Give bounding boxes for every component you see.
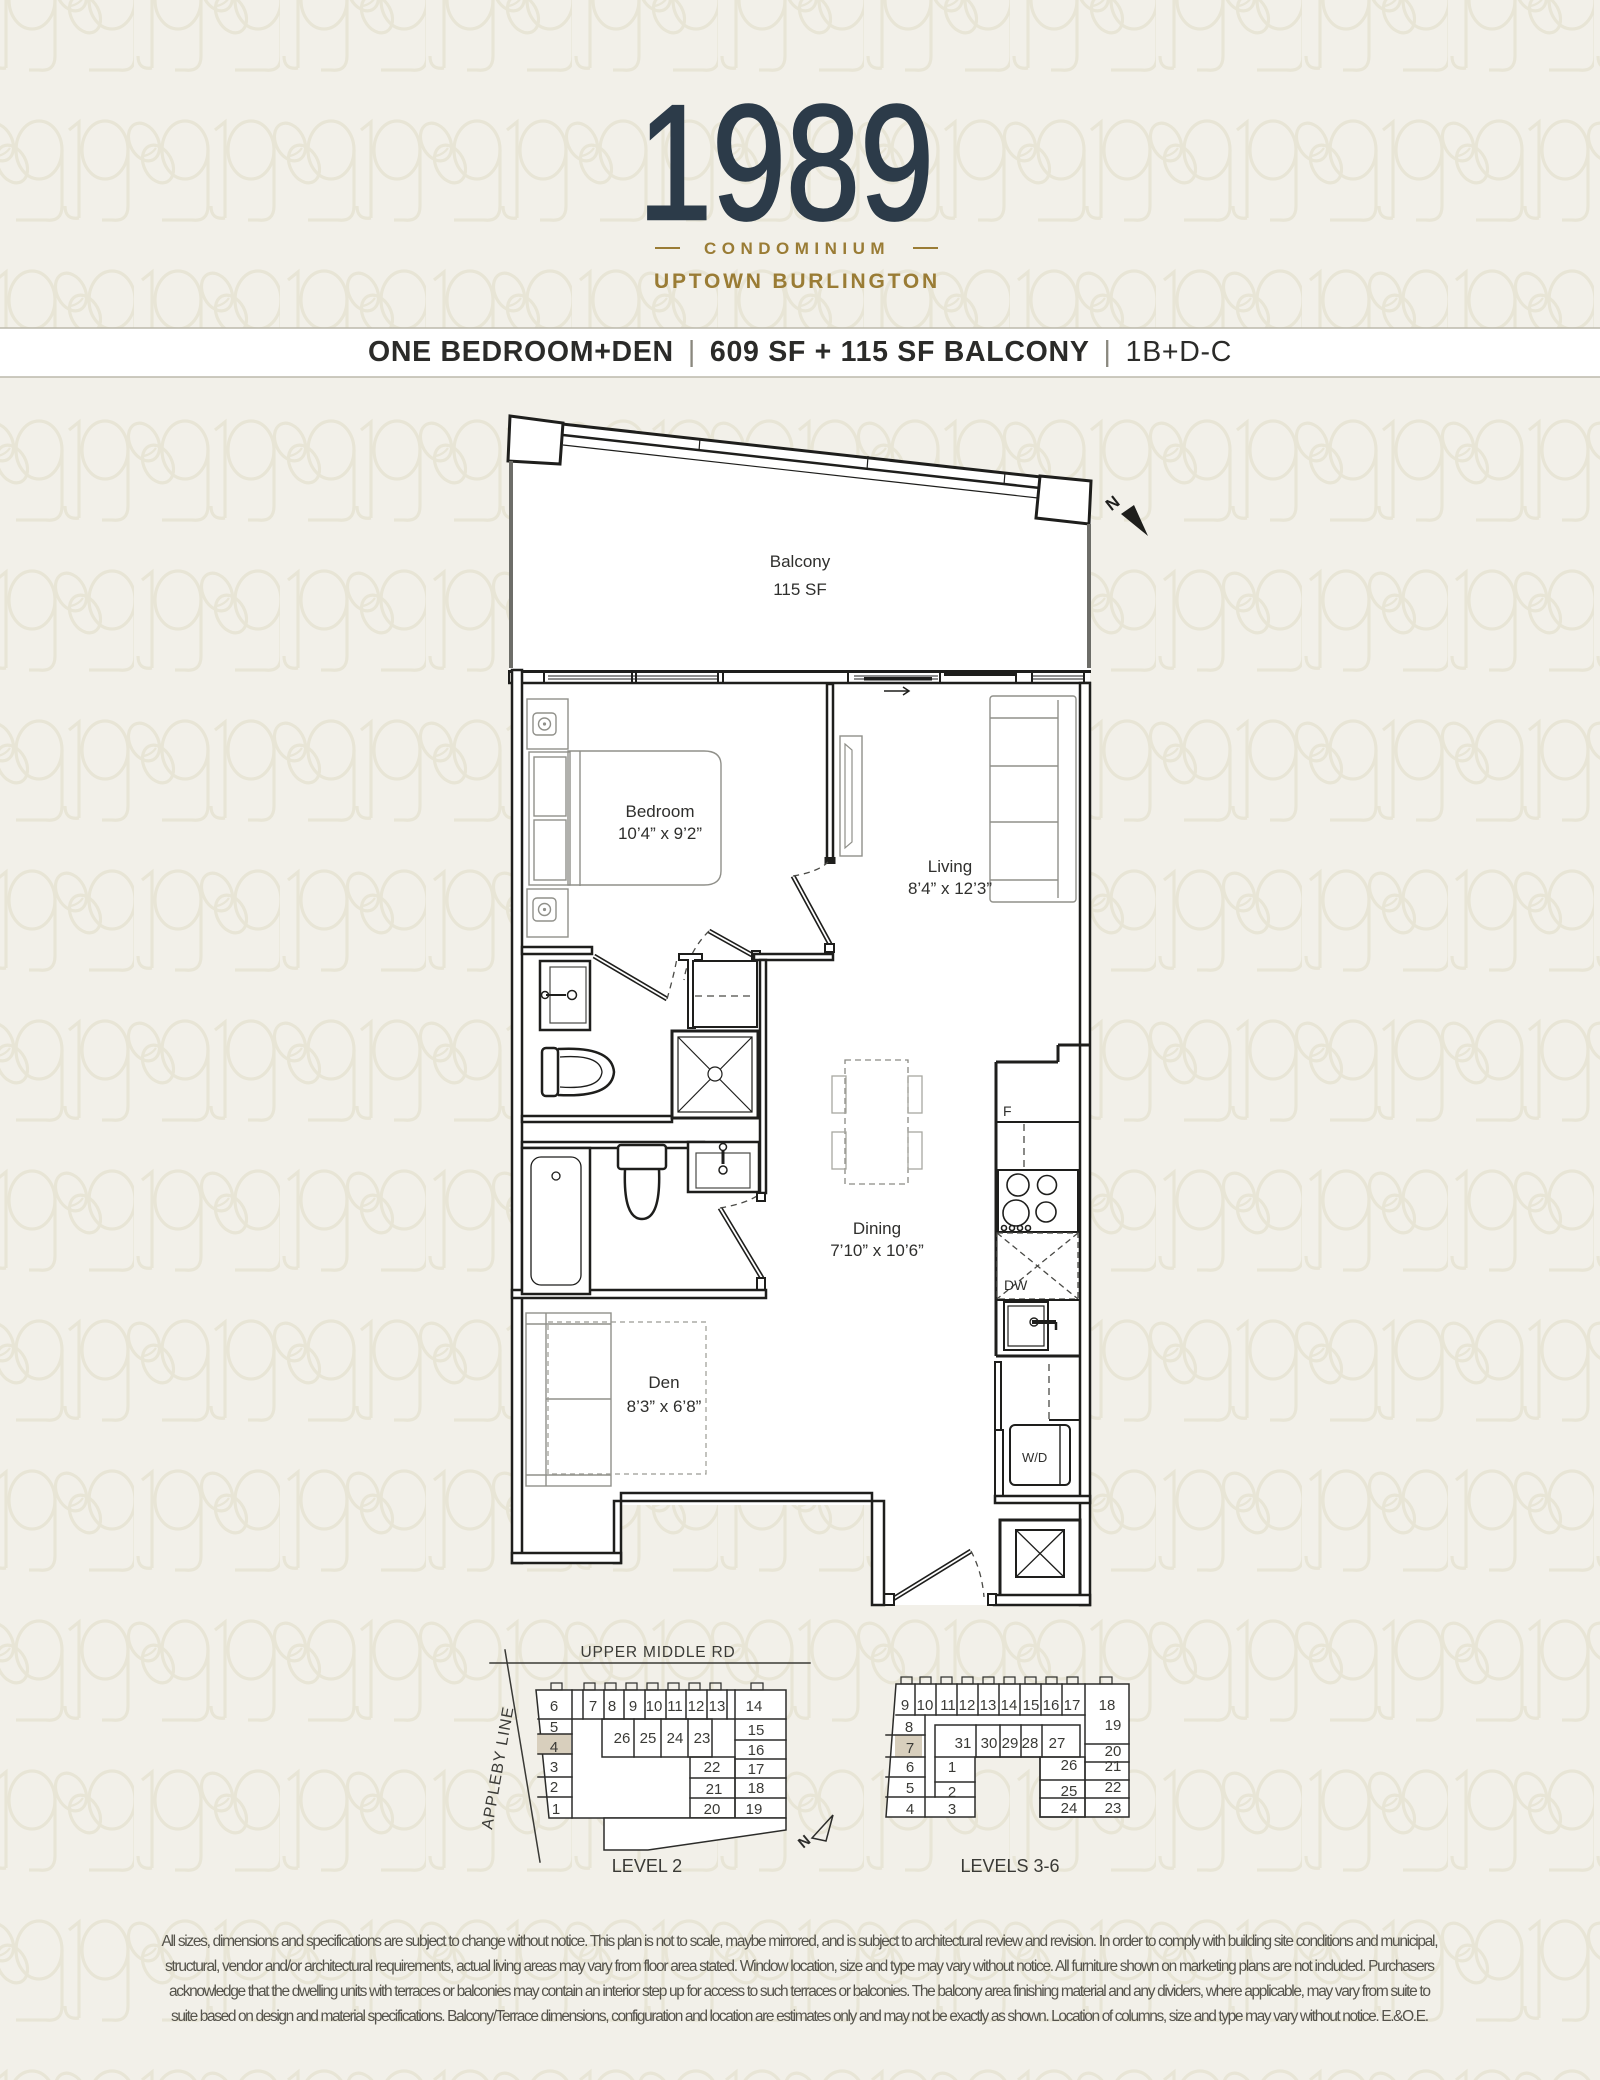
svg-text:1: 1 [948, 1759, 956, 1776]
svg-text:Balcony: Balcony [770, 552, 831, 571]
svg-text:2: 2 [948, 1784, 956, 1801]
svg-text:10’4” x 9’2”: 10’4” x 9’2” [618, 824, 702, 843]
svg-text:10: 10 [917, 1697, 934, 1714]
svg-text:8’3” x 6’8”: 8’3” x 6’8” [627, 1397, 702, 1416]
svg-text:31: 31 [955, 1735, 972, 1752]
svg-text:11: 11 [940, 1697, 956, 1714]
svg-text:23: 23 [694, 1730, 711, 1747]
svg-text:3: 3 [948, 1801, 956, 1818]
svg-text:UPTOWN BURLINGTON: UPTOWN BURLINGTON [654, 270, 940, 293]
svg-text:W/D: W/D [1022, 1450, 1047, 1465]
svg-text:9: 9 [901, 1697, 909, 1714]
svg-text:5: 5 [550, 1719, 558, 1736]
svg-text:1989: 1989 [638, 71, 934, 254]
svg-text:5: 5 [906, 1780, 914, 1797]
svg-text:CONDOMINIUM: CONDOMINIUM [704, 239, 890, 258]
svg-text:18: 18 [1099, 1697, 1116, 1714]
svg-text:17: 17 [1064, 1697, 1081, 1714]
svg-text:17: 17 [748, 1761, 765, 1778]
svg-text:19: 19 [1105, 1717, 1122, 1734]
svg-text:Bedroom: Bedroom [626, 802, 695, 821]
svg-text:115 SF: 115 SF [773, 580, 827, 599]
svg-text:12: 12 [688, 1698, 705, 1715]
svg-text:4: 4 [906, 1801, 914, 1818]
svg-text:10: 10 [646, 1698, 663, 1715]
svg-text:DW: DW [1004, 1277, 1028, 1293]
svg-text:16: 16 [1043, 1697, 1060, 1714]
svg-text:acknowledge that the dwelling: acknowledge that the dwelling units with… [169, 1983, 1431, 2000]
svg-text:28: 28 [1022, 1735, 1039, 1752]
svg-text:30: 30 [981, 1735, 998, 1752]
svg-text:15: 15 [748, 1722, 765, 1739]
svg-text:Den: Den [648, 1373, 679, 1392]
svg-text:3: 3 [550, 1759, 558, 1776]
svg-text:UPPER MIDDLE RD: UPPER MIDDLE RD [581, 1644, 736, 1661]
svg-text:13: 13 [980, 1697, 997, 1714]
svg-text:7’10” x 10’6”: 7’10” x 10’6” [830, 1241, 924, 1260]
svg-text:25: 25 [640, 1730, 657, 1747]
svg-text:14: 14 [746, 1698, 763, 1715]
svg-text:8: 8 [905, 1719, 913, 1736]
svg-text:6: 6 [906, 1759, 914, 1776]
svg-text:7: 7 [589, 1698, 597, 1715]
svg-text:19: 19 [746, 1801, 763, 1818]
svg-text:20: 20 [704, 1801, 721, 1818]
svg-text:7: 7 [906, 1740, 914, 1757]
svg-text:25: 25 [1061, 1783, 1078, 1800]
svg-text:suite based on design and mate: suite based on design and material speci… [171, 2008, 1429, 2025]
svg-text:29: 29 [1002, 1735, 1019, 1752]
svg-text:21: 21 [706, 1781, 723, 1798]
svg-text:14: 14 [1001, 1697, 1018, 1714]
svg-text:2: 2 [550, 1779, 558, 1796]
svg-text:15: 15 [1023, 1697, 1040, 1714]
svg-text:18: 18 [748, 1780, 765, 1797]
svg-text:27: 27 [1049, 1735, 1066, 1752]
svg-text:16: 16 [748, 1742, 765, 1759]
svg-text:22: 22 [1105, 1779, 1122, 1796]
svg-text:23: 23 [1105, 1800, 1122, 1817]
svg-text:12: 12 [959, 1697, 976, 1714]
svg-text:26: 26 [614, 1730, 631, 1747]
svg-text:1: 1 [552, 1801, 560, 1818]
svg-text:13: 13 [709, 1698, 726, 1715]
svg-text:22: 22 [704, 1759, 721, 1776]
svg-text:Living: Living [928, 857, 972, 876]
svg-text:26: 26 [1061, 1757, 1078, 1774]
svg-text:9: 9 [629, 1698, 637, 1715]
svg-text:21: 21 [1105, 1758, 1122, 1775]
svg-text:24: 24 [1061, 1800, 1078, 1817]
svg-text:8’4” x 12’3”: 8’4” x 12’3” [908, 879, 992, 898]
svg-text:Dining: Dining [853, 1219, 901, 1238]
svg-text:6: 6 [550, 1698, 558, 1715]
svg-text:11: 11 [667, 1698, 683, 1715]
svg-text:All sizes, dimensions and spec: All sizes, dimensions and specifications… [162, 1933, 1439, 1950]
svg-text:F: F [1003, 1103, 1012, 1119]
svg-text:8: 8 [608, 1698, 616, 1715]
svg-text:24: 24 [667, 1730, 684, 1747]
svg-text:LEVEL 2: LEVEL 2 [612, 1856, 682, 1876]
svg-text:structural, vendor and/or arch: structural, vendor and/or architectural … [165, 1958, 1435, 1975]
svg-text:4: 4 [550, 1739, 558, 1756]
svg-text:LEVELS 3-6: LEVELS 3-6 [960, 1856, 1059, 1876]
